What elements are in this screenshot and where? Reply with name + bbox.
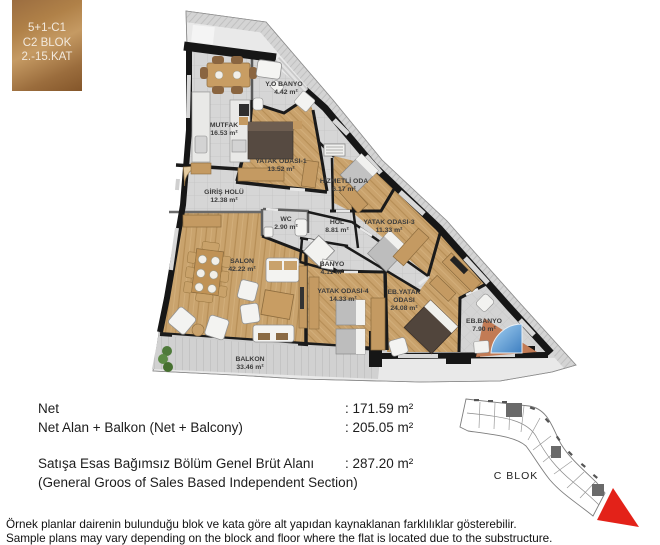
svg-text:C BLOK: C BLOK — [494, 470, 539, 482]
svg-text:24.08 m²: 24.08 m² — [390, 305, 418, 312]
svg-text:HİZMETLİ ODA: HİZMETLİ ODA — [320, 177, 368, 185]
svg-text:Y.O BANYO: Y.O BANYO — [265, 81, 302, 88]
svg-text:12.38 m²: 12.38 m² — [210, 197, 238, 204]
svg-text:14.33 m²: 14.33 m² — [329, 296, 357, 303]
svg-text:BALKON: BALKON — [235, 356, 264, 363]
svg-text:33.46 m²: 33.46 m² — [236, 364, 264, 371]
svg-text:YATAK ODASI-1: YATAK ODASI-1 — [255, 158, 306, 165]
svg-text:YATAK ODASI-4: YATAK ODASI-4 — [317, 288, 368, 295]
svg-text:BANYO: BANYO — [320, 261, 345, 268]
svg-text:16.53 m²: 16.53 m² — [210, 130, 238, 137]
svg-text:EB.YATAK: EB.YATAK — [387, 289, 420, 296]
svg-text:2.90 m²: 2.90 m² — [274, 224, 298, 231]
svg-text:WC: WC — [280, 216, 291, 223]
svg-text:YATAK ODASI-3: YATAK ODASI-3 — [363, 219, 414, 226]
svg-text:SALON: SALON — [230, 258, 254, 265]
svg-text:4.42 m²: 4.42 m² — [274, 89, 298, 96]
svg-text:11.33 m²: 11.33 m² — [376, 227, 404, 234]
svg-text:MUTFAK: MUTFAK — [210, 122, 238, 129]
svg-text:ODASI: ODASI — [393, 297, 415, 304]
svg-text:EB.BANYO: EB.BANYO — [466, 318, 502, 325]
svg-text:GİRİŞ HOLÜ: GİRİŞ HOLÜ — [204, 187, 244, 196]
svg-text:4.11 m²: 4.11 m² — [320, 269, 344, 276]
svg-text:7.90 m²: 7.90 m² — [472, 326, 496, 333]
svg-text:42.22 m²: 42.22 m² — [228, 266, 256, 273]
svg-text:6.17 m²: 6.17 m² — [332, 186, 356, 193]
svg-text:HOL: HOL — [330, 219, 344, 226]
svg-text:13.52 m²: 13.52 m² — [267, 166, 295, 173]
svg-text:8.81 m²: 8.81 m² — [325, 227, 349, 234]
